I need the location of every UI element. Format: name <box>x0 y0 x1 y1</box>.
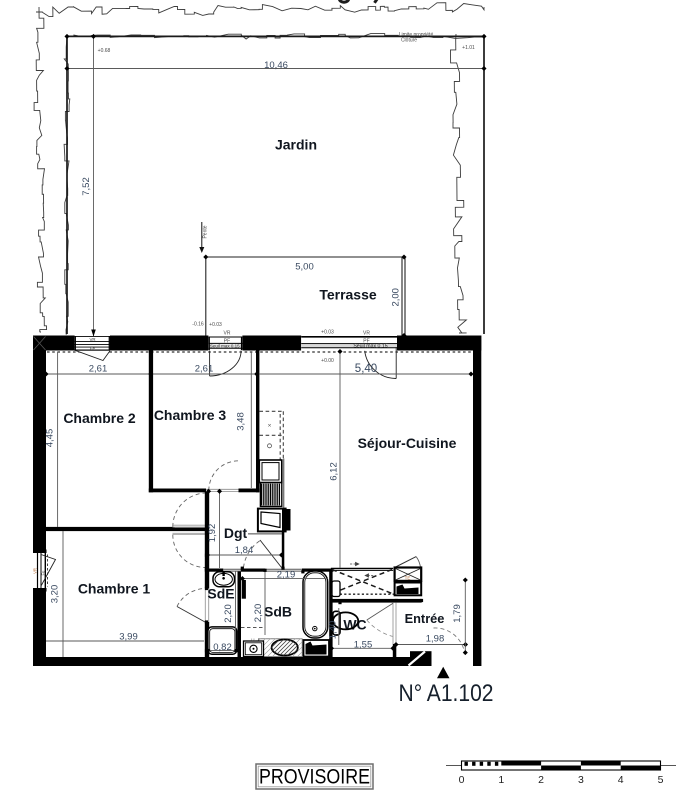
svg-text:+0.03: +0.03 <box>209 322 222 328</box>
svg-text:VR: VR <box>89 337 95 342</box>
svg-text:5,00: 5,00 <box>295 262 314 273</box>
svg-text:Pente: Pente <box>203 225 209 238</box>
svg-text:1,84: 1,84 <box>235 545 254 556</box>
svg-text:2,20: 2,20 <box>223 604 234 623</box>
svg-text:Chambre 3: Chambre 3 <box>154 407 227 423</box>
svg-text:TE: TE <box>405 576 411 581</box>
svg-text:Dgt: Dgt <box>224 525 248 541</box>
svg-text:Clôture: Clôture <box>401 38 417 44</box>
svg-text:Fe: Fe <box>41 570 46 576</box>
svg-text:N° A1.102: N° A1.102 <box>399 680 494 707</box>
svg-text:1: 1 <box>498 774 504 786</box>
svg-text:PROVISOIRE: PROVISOIRE <box>259 765 370 789</box>
svg-text:+0.00: +0.00 <box>321 358 334 364</box>
svg-text:1,40: 1,40 <box>328 621 339 640</box>
svg-text:4: 4 <box>618 774 624 786</box>
svg-text:2,61: 2,61 <box>89 364 108 375</box>
svg-text:SdE: SdE <box>207 586 234 602</box>
svg-text:2,00: 2,00 <box>391 288 402 307</box>
svg-text:Seuil max 0,15: Seuil max 0,15 <box>210 344 240 349</box>
svg-text:+0.68: +0.68 <box>98 48 111 54</box>
svg-text:2,19: 2,19 <box>277 570 296 581</box>
svg-text:Seuil max 0,15: Seuil max 0,15 <box>353 344 387 350</box>
svg-text:1,55: 1,55 <box>354 639 373 650</box>
svg-text:Chambre 2: Chambre 2 <box>63 410 136 426</box>
svg-text:3: 3 <box>578 774 584 786</box>
svg-text:Terrasse: Terrasse <box>319 287 377 303</box>
svg-text:Séjour-Cuisine: Séjour-Cuisine <box>358 435 457 451</box>
svg-text:SdB: SdB <box>264 604 292 620</box>
svg-text:6,12: 6,12 <box>329 462 340 481</box>
svg-text:2,61: 2,61 <box>195 364 214 375</box>
svg-text:2: 2 <box>538 774 544 786</box>
svg-text:3,99: 3,99 <box>119 632 138 643</box>
svg-text:5: 5 <box>658 774 664 786</box>
svg-text:5,40: 5,40 <box>355 363 377 375</box>
svg-text:Fe: Fe <box>90 346 96 351</box>
svg-text:×: × <box>268 423 272 430</box>
svg-text:3,20: 3,20 <box>50 585 61 604</box>
svg-text:10,46: 10,46 <box>264 60 288 71</box>
svg-text:-0.16: -0.16 <box>192 322 204 328</box>
svg-text:VR: VR <box>363 331 370 337</box>
svg-text:0: 0 <box>459 774 465 786</box>
svg-text:Chambre 1: Chambre 1 <box>78 581 151 597</box>
svg-text:1,92: 1,92 <box>207 524 218 543</box>
svg-text:1,98: 1,98 <box>426 634 445 645</box>
svg-text:+0.03: +0.03 <box>321 329 334 335</box>
svg-text:0,82: 0,82 <box>213 642 232 653</box>
svg-text:1,79: 1,79 <box>452 604 463 623</box>
svg-text:Entrée: Entrée <box>405 611 445 626</box>
svg-text:2,20: 2,20 <box>253 604 264 623</box>
svg-text:3,48: 3,48 <box>236 412 247 431</box>
svg-text:4,45: 4,45 <box>45 429 56 448</box>
svg-text:VR: VR <box>33 568 38 574</box>
svg-text:LL: LL <box>251 638 255 642</box>
svg-text:+1.01: +1.01 <box>462 45 475 51</box>
svg-text:7,52: 7,52 <box>81 177 92 196</box>
svg-text:Jardin: Jardin <box>275 137 317 153</box>
svg-text:VR: VR <box>224 331 231 337</box>
